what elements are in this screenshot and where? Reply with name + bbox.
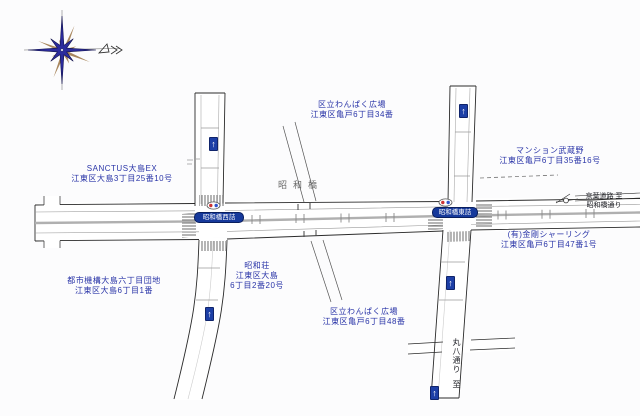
place-name: SANCTUS大島EX: [71, 164, 172, 174]
arrow-glyph: ↑: [461, 106, 466, 116]
place-name: 区立わんぱく広場: [311, 100, 394, 110]
place-address: 江東区亀戸6丁目47番1号: [501, 240, 597, 250]
place-address: 江東区亀戸6丁目48番: [323, 317, 406, 327]
bridge-label-showabashi: 昭和橋: [278, 178, 323, 191]
place-address: 江東区亀戸6丁目34番: [311, 110, 394, 120]
place-address: 江東区亀戸6丁目35番16号: [499, 156, 600, 166]
road-network: [0, 0, 640, 416]
compass-rose-icon: [24, 10, 122, 90]
direction-label-south-to: 至: [452, 380, 460, 389]
place-name: (有)金剛シャーリング: [501, 230, 597, 240]
arrow-glyph: ↑: [432, 388, 437, 398]
place-name: 都市機構大島六丁目団地: [67, 276, 161, 286]
traffic-signal-icon: [438, 198, 453, 207]
intersection-badge-west: 昭和橋西詰: [194, 212, 244, 223]
place-label-wanpaku-hiroba-34: 区立わんぱく広場 江東区亀戸6丁目34番: [311, 100, 394, 120]
direction-line: 昭和橋通り: [586, 201, 623, 210]
one-way-arrow-icon: ↑: [446, 276, 455, 290]
intersection-badge-east: 昭和橋東詰: [432, 207, 478, 218]
one-way-arrow-icon: ↑: [205, 307, 214, 321]
place-label-wanpaku-hiroba-48: 区立わんぱく広場 江東区亀戸6丁目48番: [323, 307, 406, 327]
map-view: SANCTUS大島EX 江東区大島3丁目25番10号 区立わんぱく広場 江東区亀…: [0, 0, 640, 416]
place-name: 昭和荘: [230, 261, 284, 271]
one-way-arrow-icon: ↑: [209, 137, 218, 151]
one-way-arrow-icon: ↑: [459, 104, 468, 118]
place-label-kongo-shearing: (有)金剛シャーリング 江東区亀戸6丁目47番1号: [501, 230, 597, 250]
place-label-mansion-musashino: マンション武蔵野 江東区亀戸6丁目35番16号: [499, 146, 600, 166]
arrow-glyph: ↑: [448, 278, 453, 288]
place-address: 6丁目2番20号: [230, 281, 284, 291]
place-address: 江東区大島3丁目25番10号: [71, 174, 172, 184]
one-way-arrow-icon: ↑: [430, 386, 439, 400]
place-address: 江東区大島: [230, 271, 284, 281]
direction-line: 京葉道路 至: [586, 192, 623, 201]
arrow-glyph: ↑: [207, 309, 212, 319]
road-label-maruhachi-dori: 丸八通り: [452, 338, 460, 374]
place-name: マンション武蔵野: [499, 146, 600, 156]
place-label-showaso: 昭和荘 江東区大島 6丁目2番20号: [230, 261, 284, 291]
place-label-ur-ojima-danchi: 都市機構大島六丁目団地 江東区大島6丁目1番: [67, 276, 161, 296]
place-label-sanctus-ojima: SANCTUS大島EX 江東区大島3丁目25番10号: [71, 164, 172, 184]
place-address: 江東区大島6丁目1番: [67, 286, 161, 296]
traffic-signal-icon: [206, 201, 221, 210]
place-name: 区立わんぱく広場: [323, 307, 406, 317]
direction-label-east: 京葉道路 至 昭和橋通り: [586, 192, 623, 210]
arrow-glyph: ↑: [211, 139, 216, 149]
north-arrow-icon: [99, 44, 122, 54]
